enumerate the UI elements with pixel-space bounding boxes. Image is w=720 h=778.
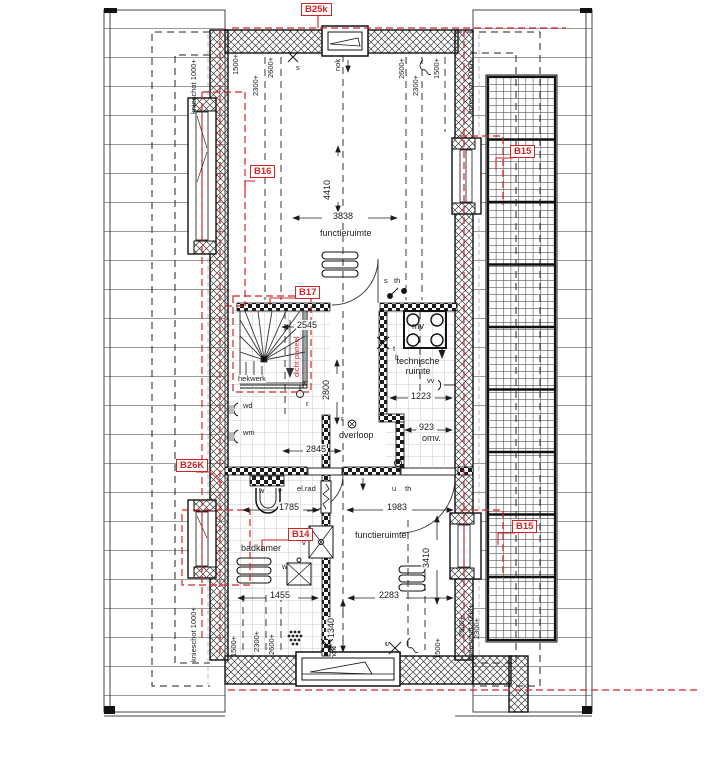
room-label-functieruimte-bottom: functieruimte bbox=[355, 530, 407, 540]
label-wd: wd bbox=[243, 402, 253, 410]
height-marker-1500-br: 1500+ bbox=[434, 638, 442, 659]
switch-label-s-top: s bbox=[296, 64, 300, 72]
room-label-badkamer: badkamer bbox=[241, 543, 281, 553]
knieschot-label-br: knieschot 1000+ bbox=[467, 604, 475, 659]
room-label-functieruimte-top: functieruimte bbox=[320, 228, 372, 238]
knieschot-label-bl: knieschot 1000+ bbox=[190, 607, 198, 662]
label-wm: wm bbox=[243, 429, 255, 437]
label-w-toilet: w bbox=[259, 487, 264, 495]
dim-2545: 2545 bbox=[296, 320, 318, 330]
label-t: t bbox=[393, 345, 395, 353]
dim-923: 923 bbox=[418, 422, 435, 432]
label-dicht-paneel: dicht paneel bbox=[293, 337, 301, 377]
dim-1223: 1223 bbox=[410, 391, 432, 401]
dim-omv: omv. bbox=[421, 433, 442, 443]
radiator-top bbox=[322, 252, 358, 277]
panel-label-b14: B14 bbox=[288, 528, 313, 541]
dim-3838: 3838 bbox=[332, 211, 354, 221]
label-v-toilet: v bbox=[278, 487, 282, 495]
electric-radiator bbox=[321, 481, 331, 513]
panel-label-b25k: B25k bbox=[301, 3, 332, 16]
dim-2845: 2845 bbox=[305, 444, 327, 454]
height-marker-2600-br: 2600+ bbox=[458, 616, 466, 637]
label-lt: lt bbox=[395, 354, 399, 362]
label-r-1: r bbox=[306, 400, 309, 408]
height-marker-2600-bl: 2600+ bbox=[268, 634, 276, 655]
knieschot-label-tl: knieschot 1000+ bbox=[190, 59, 198, 114]
height-marker-2300-bl: 2300+ bbox=[253, 631, 261, 652]
label-th-door: th bbox=[405, 485, 411, 493]
right-window-lower bbox=[450, 513, 481, 579]
right-window-upper bbox=[452, 138, 481, 214]
knieschot-label-tr: knieschot 1000+ bbox=[467, 59, 475, 114]
label-s-techroom: s bbox=[384, 277, 388, 285]
height-marker-2300-tr: 2300+ bbox=[412, 75, 420, 96]
panel-label-b26k: B26K bbox=[176, 459, 208, 472]
panel-label-b16: B16 bbox=[250, 165, 275, 178]
nok-label-top: nok bbox=[334, 59, 342, 71]
dim-4410: 4410 bbox=[322, 179, 332, 201]
panel-label-b15-lower: B15 bbox=[512, 520, 537, 533]
nok-label-bottom: nok bbox=[330, 647, 338, 659]
height-marker-2600-tr: 2600+ bbox=[398, 58, 406, 79]
height-marker-1500-tl: 1500+ bbox=[232, 54, 240, 75]
label-th-techroom: th bbox=[394, 277, 400, 285]
label-w-basin: w bbox=[282, 563, 287, 571]
floor-plan: B25k B16 B17 B26K B14 B15 B15 functierui… bbox=[0, 0, 720, 778]
dim-1340: 1340 bbox=[326, 617, 336, 639]
label-x-switch: x bbox=[303, 379, 307, 387]
radiator-bottom bbox=[399, 566, 425, 591]
height-marker-2300-tl: 2300+ bbox=[252, 75, 260, 96]
floor-plan-drawing bbox=[0, 0, 720, 778]
solar-panel-array bbox=[486, 75, 557, 642]
bottom-dormer-window bbox=[296, 652, 400, 686]
label-v-sink: v bbox=[302, 539, 306, 547]
dim-1983: 1983 bbox=[386, 502, 408, 512]
panel-label-b15-upper: B15 bbox=[510, 145, 535, 158]
label-el-rad: el.rad bbox=[297, 485, 316, 493]
dim-2800: 2800 bbox=[321, 379, 331, 401]
dim-1455: 1455 bbox=[269, 590, 291, 600]
label-vv: vv bbox=[427, 377, 435, 385]
dim-3410: 3410 bbox=[421, 547, 431, 569]
height-marker-1500-bl: 1500+ bbox=[230, 636, 238, 657]
height-marker-2600-tl: 2600+ bbox=[267, 57, 275, 78]
label-u-door: u bbox=[392, 485, 396, 493]
room-label-overloop: overloop bbox=[339, 430, 374, 440]
height-marker-1500-tr: 1500+ bbox=[433, 58, 441, 79]
label-e: e bbox=[383, 642, 391, 646]
dim-1785: 1785 bbox=[278, 502, 300, 512]
label-hekwerk: hekwerk bbox=[238, 375, 266, 383]
panel-label-b17: B17 bbox=[295, 286, 320, 299]
label-mv: mv bbox=[412, 321, 424, 331]
top-dormer-window bbox=[322, 26, 368, 56]
label-r-2: r bbox=[341, 415, 344, 423]
dim-2283: 2283 bbox=[378, 590, 400, 600]
